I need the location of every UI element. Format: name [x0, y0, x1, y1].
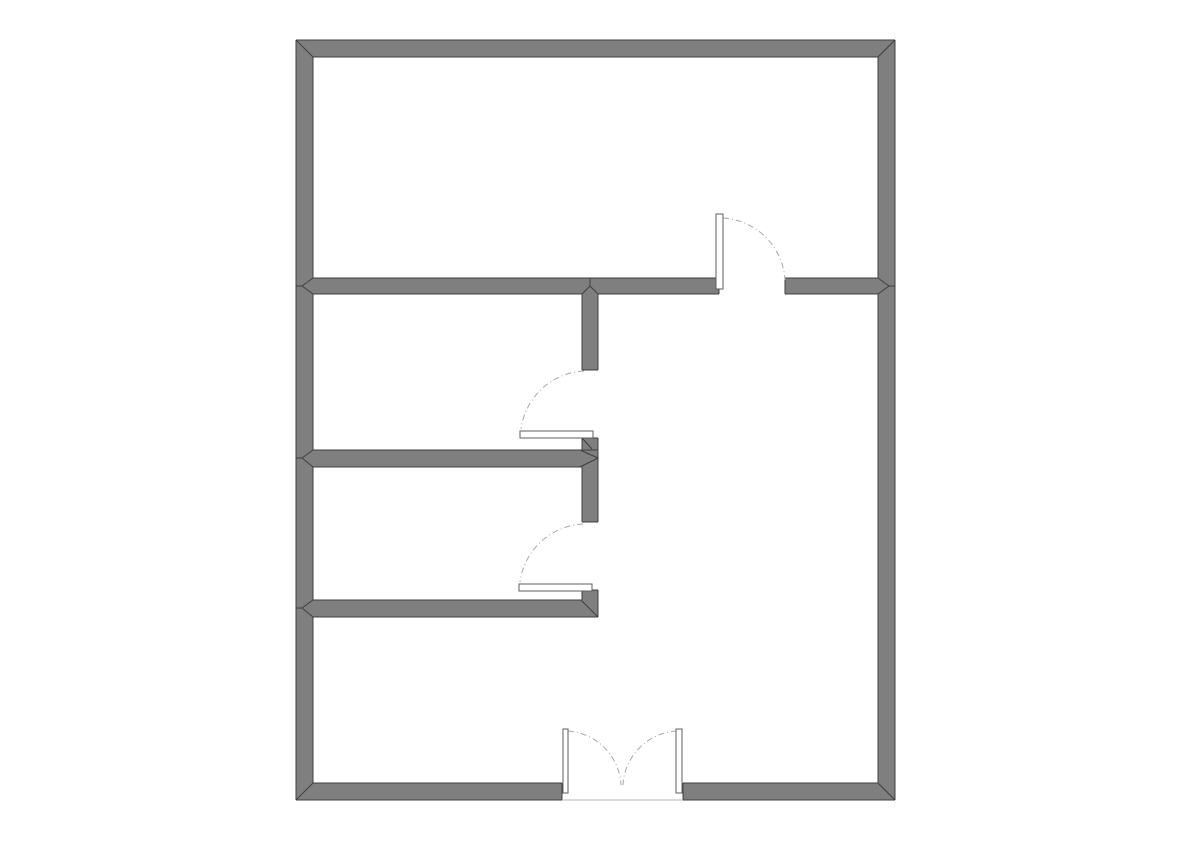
outer-wall-bottom-left	[296, 783, 562, 800]
interior-wall-h3-stub	[582, 590, 598, 601]
outer-wall-top	[296, 40, 895, 57]
walls-layer	[296, 40, 895, 800]
door-2-swing-arc	[521, 371, 584, 429]
interior-wall-h3	[313, 600, 598, 617]
interior-wall-h1-right	[785, 278, 878, 294]
outer-wall-bottom-right	[683, 783, 895, 800]
interior-wall-v-upper	[582, 294, 598, 370]
door-1-leaf	[716, 214, 723, 289]
entry-door-left-leaf	[563, 729, 568, 793]
interior-wall-h2	[313, 450, 598, 467]
entry-door-right-leaf	[676, 729, 682, 793]
door-3-leaf	[519, 584, 592, 591]
interior-wall-h1-left	[313, 278, 719, 294]
outer-wall-left	[296, 40, 313, 800]
interior-wall-v-lower	[582, 467, 598, 522]
floor-plan-canvas	[0, 0, 1191, 842]
door-leaves-layer	[519, 214, 723, 793]
door-1-swing-arc	[723, 218, 785, 280]
entry-door-right-swing-arc	[623, 731, 677, 785]
door-swing-arcs-layer	[520, 218, 785, 785]
wall-joint-seams-layer	[296, 40, 895, 800]
door-2-leaf	[520, 431, 593, 438]
entry-door-left-swing-arc	[568, 731, 621, 785]
floor-plan-viewport	[0, 0, 1191, 842]
door-3-swing-arc	[520, 524, 583, 582]
outer-wall-right	[878, 40, 895, 800]
wall-outlines-layer	[296, 40, 895, 800]
